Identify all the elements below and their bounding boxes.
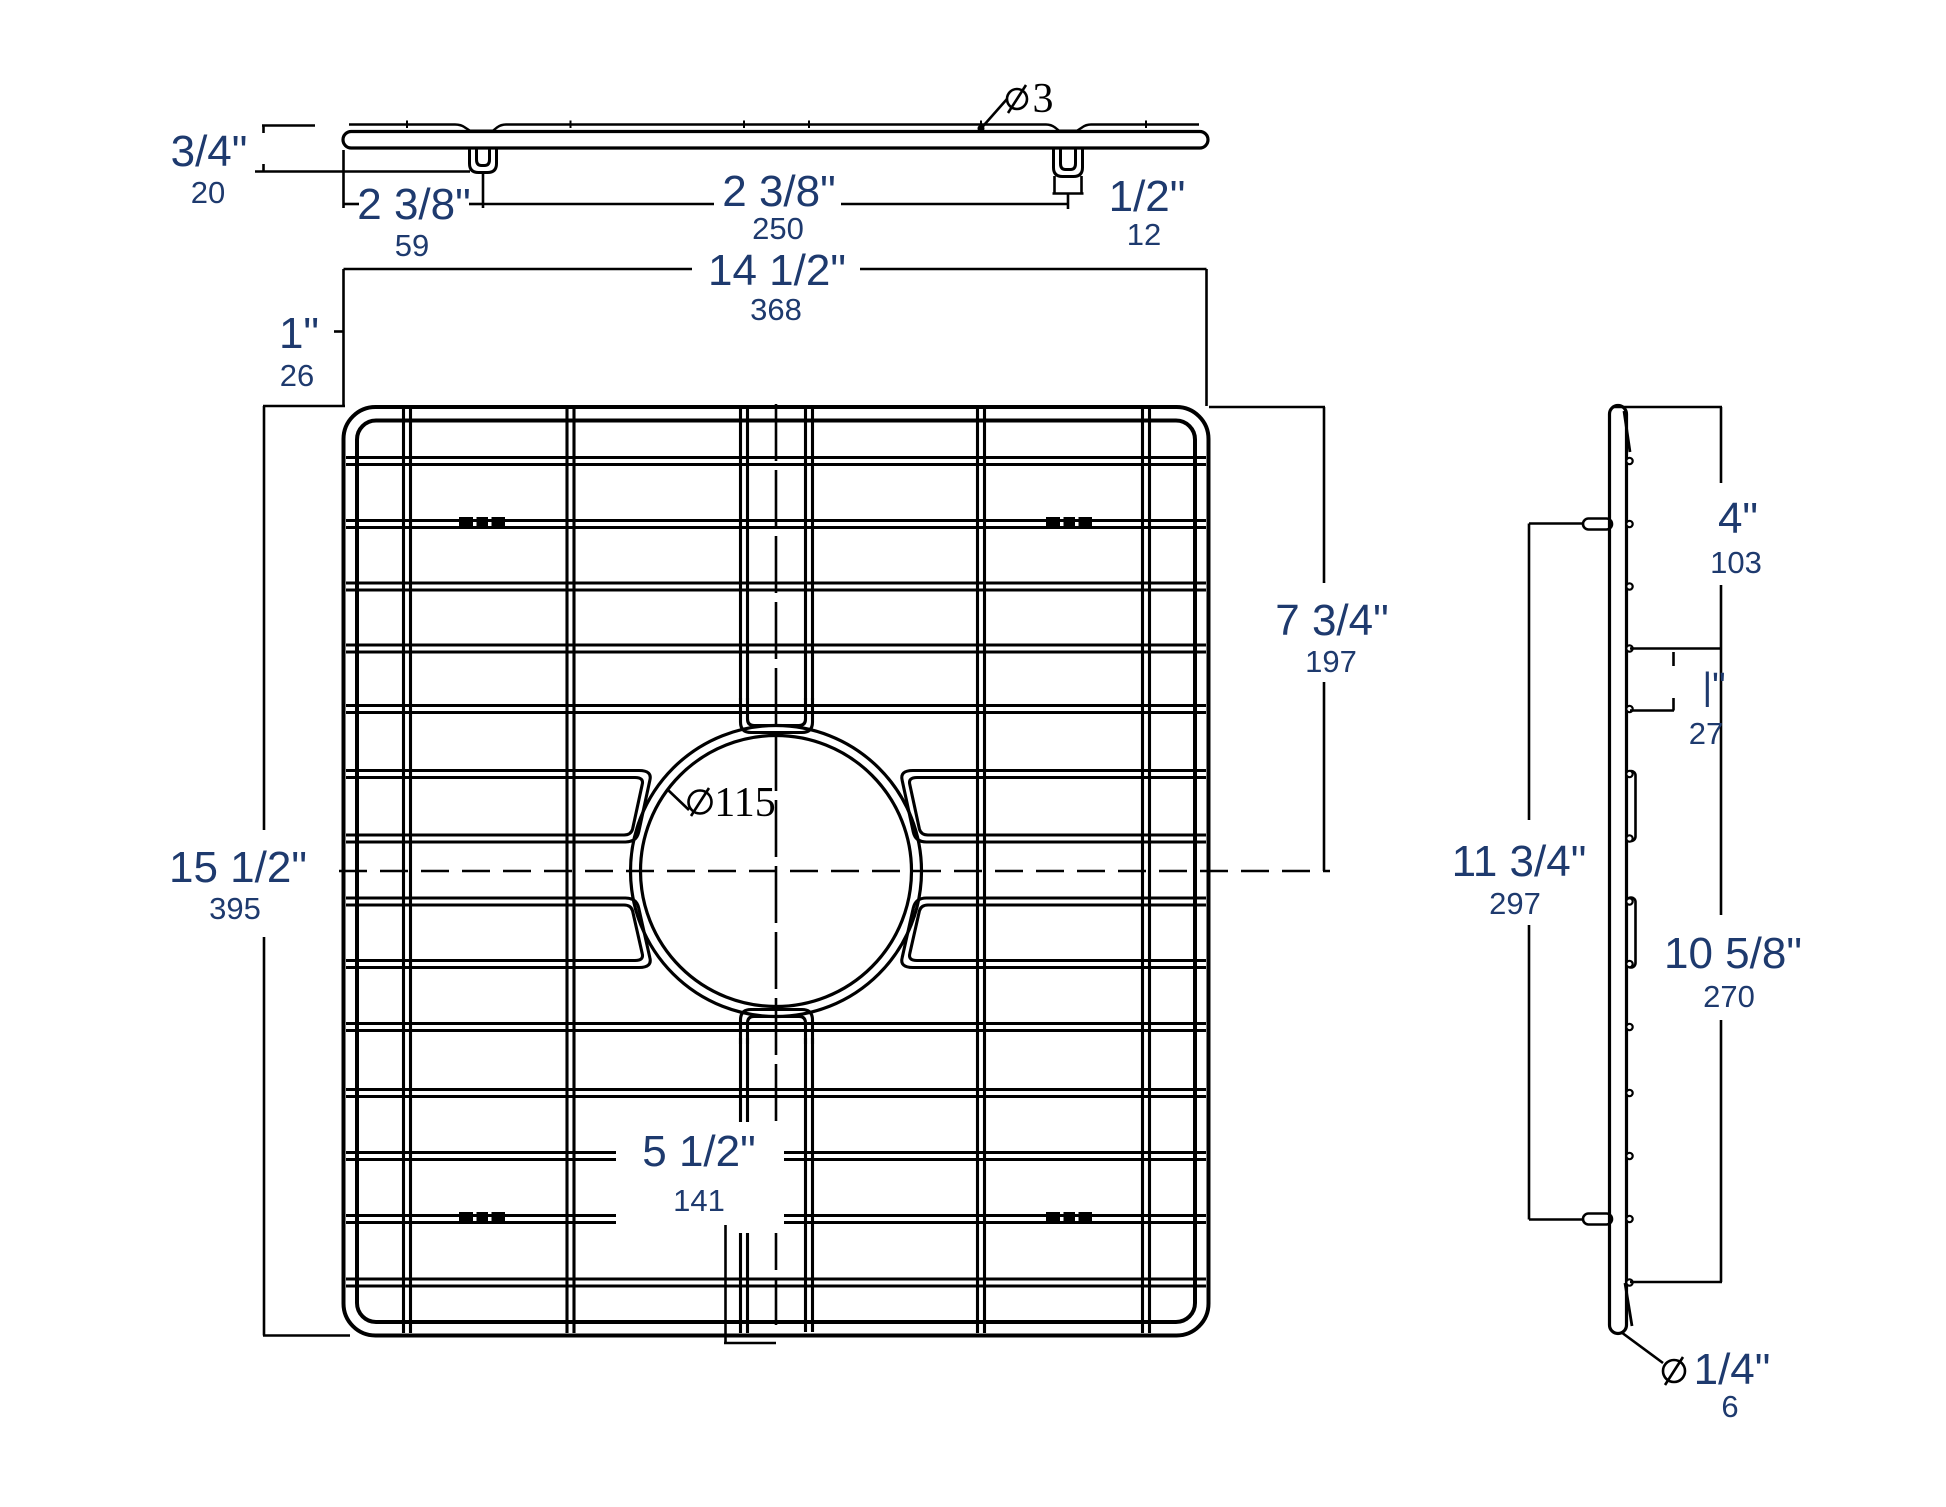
- svg-text:141: 141: [673, 1183, 725, 1218]
- svg-text:250: 250: [752, 211, 804, 246]
- svg-text:1/4": 1/4": [1694, 1345, 1771, 1394]
- svg-text:10 5/8": 10 5/8": [1664, 929, 1802, 978]
- svg-text:59: 59: [395, 228, 429, 263]
- svg-text:7 3/4": 7 3/4": [1275, 596, 1388, 645]
- svg-text:395: 395: [209, 891, 261, 926]
- svg-text:1": 1": [279, 309, 319, 358]
- svg-text:270: 270: [1703, 979, 1755, 1014]
- svg-text:|": |": [1702, 666, 1725, 708]
- svg-text:368: 368: [750, 292, 802, 327]
- svg-text:1/2": 1/2": [1109, 172, 1186, 221]
- svg-text:4": 4": [1718, 494, 1758, 543]
- svg-text:14 1/2": 14 1/2": [708, 246, 846, 295]
- svg-text:6: 6: [1721, 1389, 1738, 1424]
- svg-text:5 1/2": 5 1/2": [642, 1127, 755, 1176]
- svg-text:2 3/8": 2 3/8": [357, 180, 470, 229]
- svg-text:15 1/2": 15 1/2": [169, 843, 307, 892]
- svg-text:115: 115: [714, 780, 775, 826]
- svg-text:26: 26: [280, 358, 314, 393]
- svg-text:103: 103: [1710, 545, 1762, 580]
- svg-text:11 3/4": 11 3/4": [1452, 837, 1587, 886]
- svg-text:27: 27: [1689, 716, 1723, 751]
- svg-text:3: 3: [1033, 76, 1054, 122]
- svg-text:20: 20: [191, 175, 225, 210]
- svg-text:12: 12: [1127, 217, 1161, 252]
- svg-text:197: 197: [1305, 644, 1357, 679]
- svg-text:297: 297: [1489, 886, 1541, 921]
- svg-text:3/4": 3/4": [171, 127, 248, 176]
- svg-text:2 3/8": 2 3/8": [722, 167, 835, 216]
